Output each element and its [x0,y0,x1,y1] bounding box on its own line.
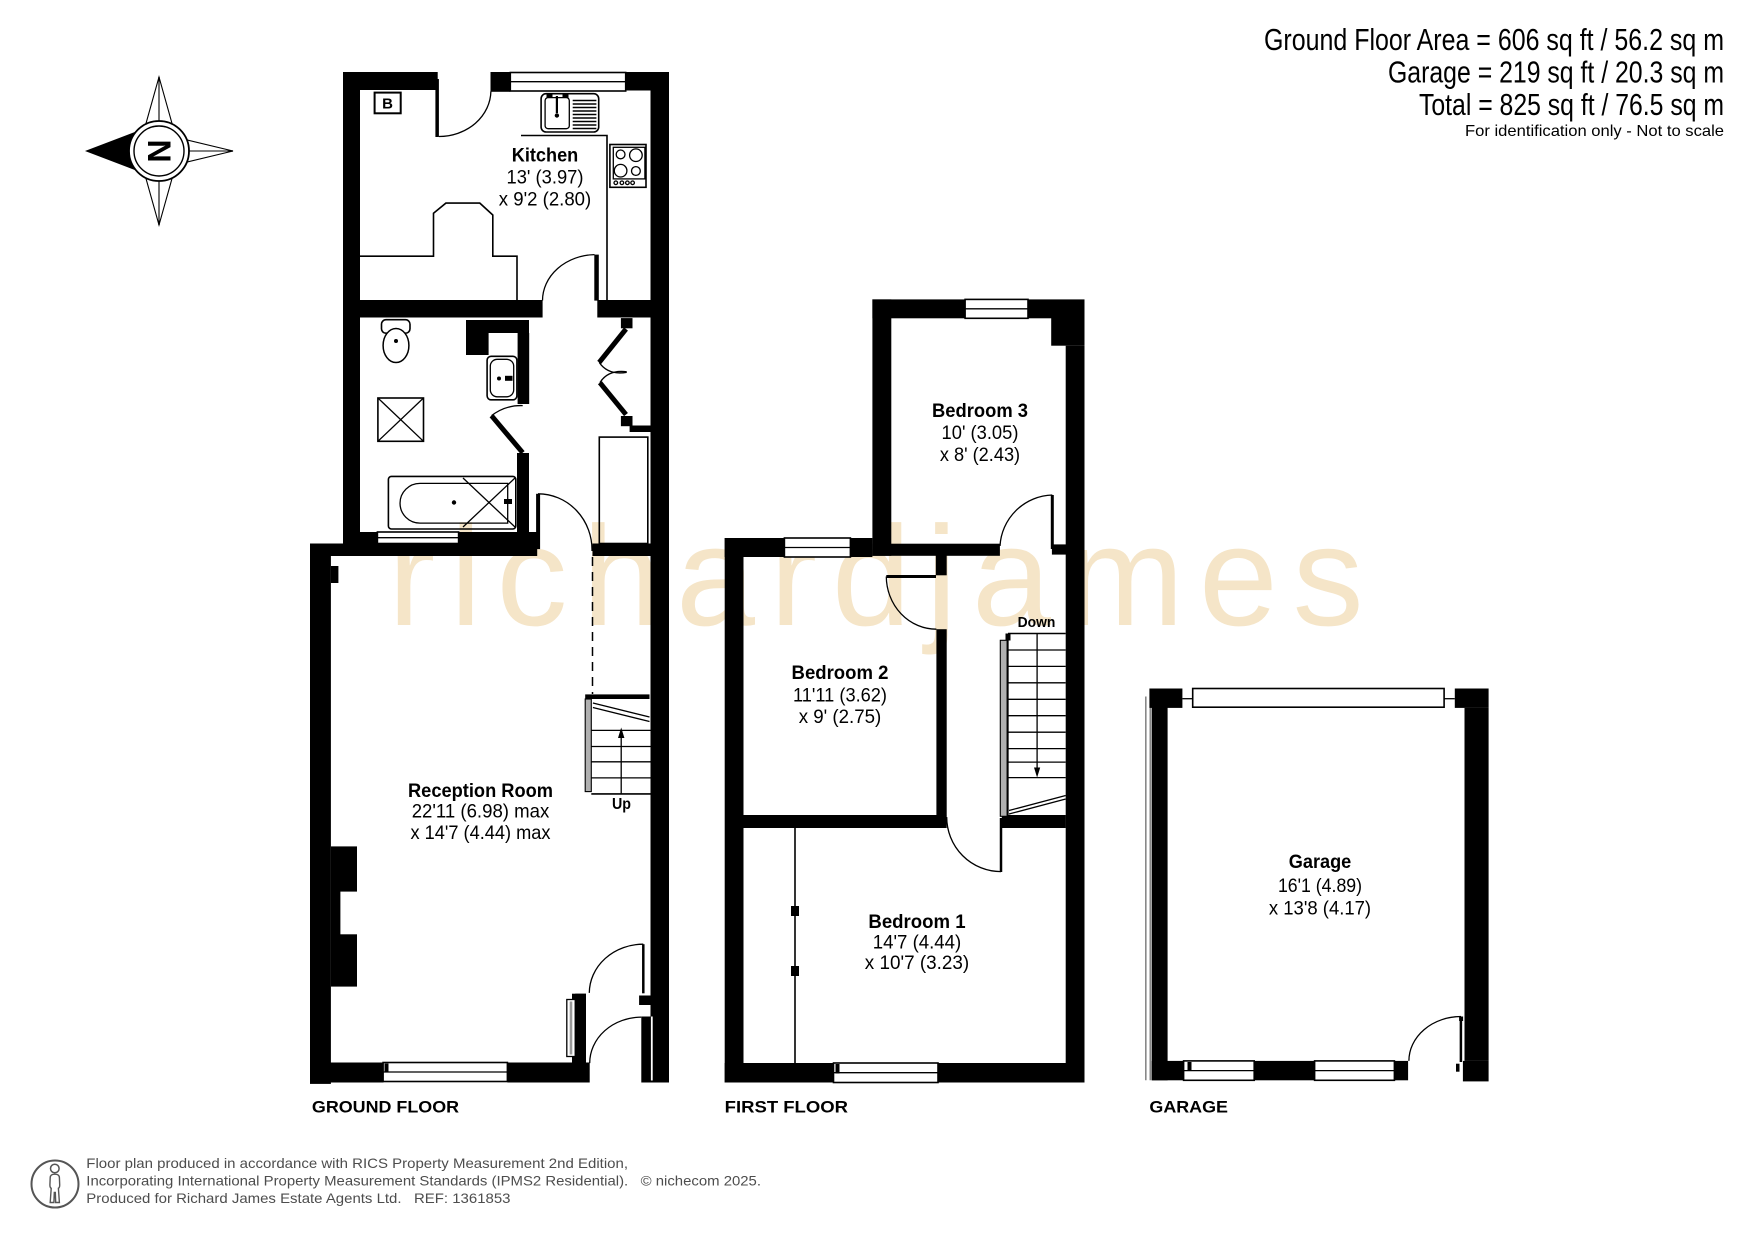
svg-text:Bedroom 3: Bedroom 3 [932,400,1028,422]
svg-text:x 10'7 (3.23): x 10'7 (3.23) [865,952,969,974]
svg-text:x 14'7 (4.44) max: x 14'7 (4.44) max [411,822,551,844]
svg-text:Down: Down [1018,614,1056,631]
svg-text:Total = 825 sq ft / 76.5 sq m: Total = 825 sq ft / 76.5 sq m [1419,87,1724,122]
svg-text:10' (3.05): 10' (3.05) [942,422,1019,444]
svg-text:N: N [142,139,178,162]
svg-text:B: B [382,96,393,113]
svg-text:Garage: Garage [1289,851,1352,873]
svg-text:Incorporating International Pr: Incorporating International Property Mea… [86,1173,761,1189]
svg-text:22'11 (6.98) max: 22'11 (6.98) max [412,800,550,822]
svg-text:x 9'2 (2.80): x 9'2 (2.80) [499,189,591,211]
svg-text:Reception Room: Reception Room [408,780,553,802]
svg-text:x 8' (2.43): x 8' (2.43) [940,444,1020,466]
svg-text:Floor plan produced in accorda: Floor plan produced in accordance with R… [86,1155,628,1171]
svg-text:FIRST FLOOR: FIRST FLOOR [725,1099,848,1117]
svg-text:Produced for Richard James Est: Produced for Richard James Estate Agents… [86,1190,510,1206]
svg-text:x 9' (2.75): x 9' (2.75) [799,706,882,728]
svg-text:Up: Up [612,796,631,813]
svg-text:Garage = 219 sq ft / 20.3 sq m: Garage = 219 sq ft / 20.3 sq m [1388,54,1724,89]
svg-text:Bedroom 1: Bedroom 1 [868,911,965,933]
svg-text:x 13'8 (4.17): x 13'8 (4.17) [1269,898,1371,920]
svg-text:13' (3.97): 13' (3.97) [507,166,584,188]
svg-text:Kitchen: Kitchen [512,145,579,167]
svg-text:14'7 (4.44): 14'7 (4.44) [873,932,962,954]
svg-text:Bedroom 2: Bedroom 2 [792,662,889,684]
svg-text:16'1 (4.89): 16'1 (4.89) [1278,875,1362,897]
svg-text:11'11 (3.62): 11'11 (3.62) [793,684,887,706]
svg-text:For identification only - Not: For identification only - Not to scale [1465,123,1724,140]
svg-text:GROUND FLOOR: GROUND FLOOR [312,1099,459,1117]
svg-text:Ground Floor Area = 606 sq ft: Ground Floor Area = 606 sq ft / 56.2 sq … [1264,22,1724,57]
svg-text:GARAGE: GARAGE [1149,1099,1228,1117]
